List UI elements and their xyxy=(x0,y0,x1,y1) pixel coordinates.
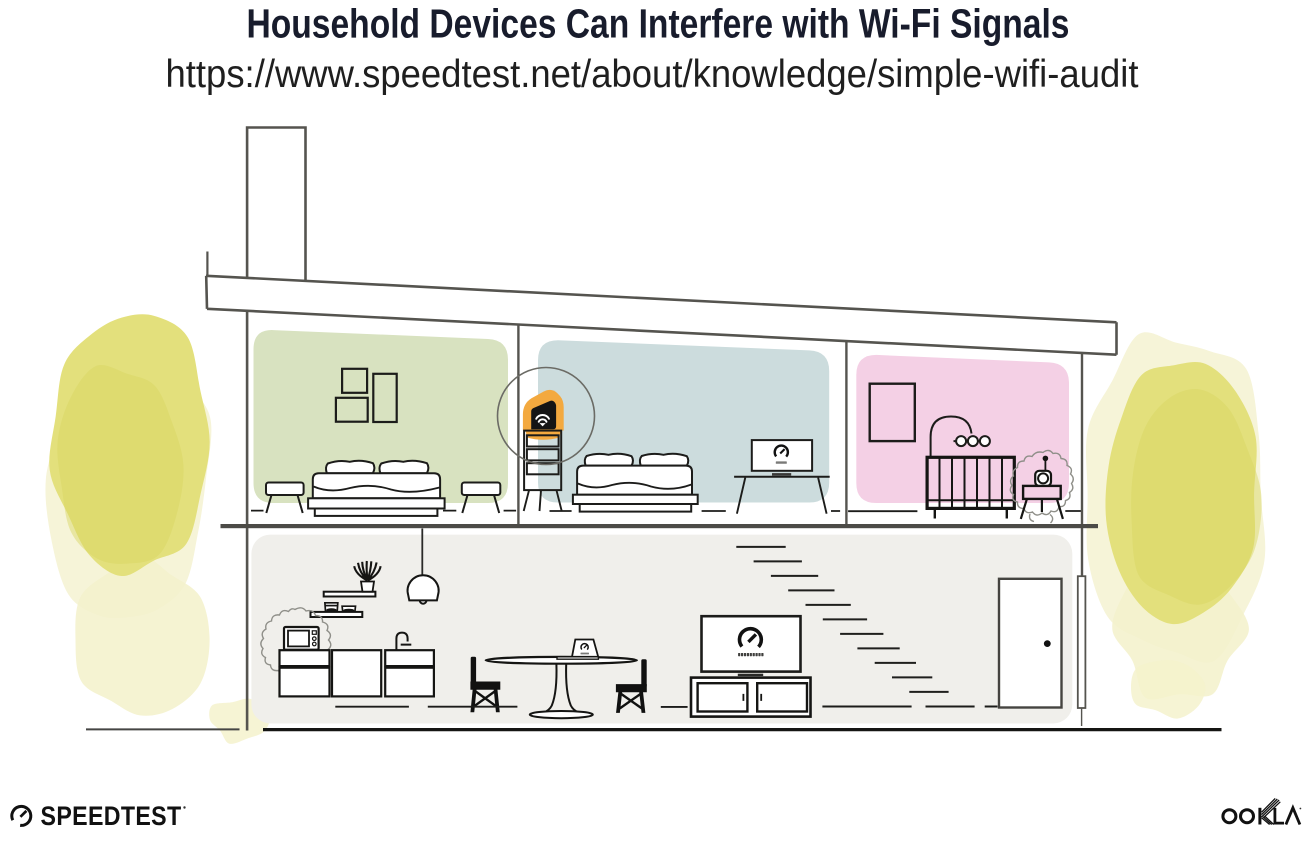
svg-text:SPEEDTEST: SPEEDTEST xyxy=(41,801,182,831)
svg-text:Household Devices Can Interfer: Household Devices Can Interfere with Wi-… xyxy=(247,1,1070,47)
svg-text:https://www.speedtest.net/abou: https://www.speedtest.net/about/knowledg… xyxy=(166,53,1139,96)
